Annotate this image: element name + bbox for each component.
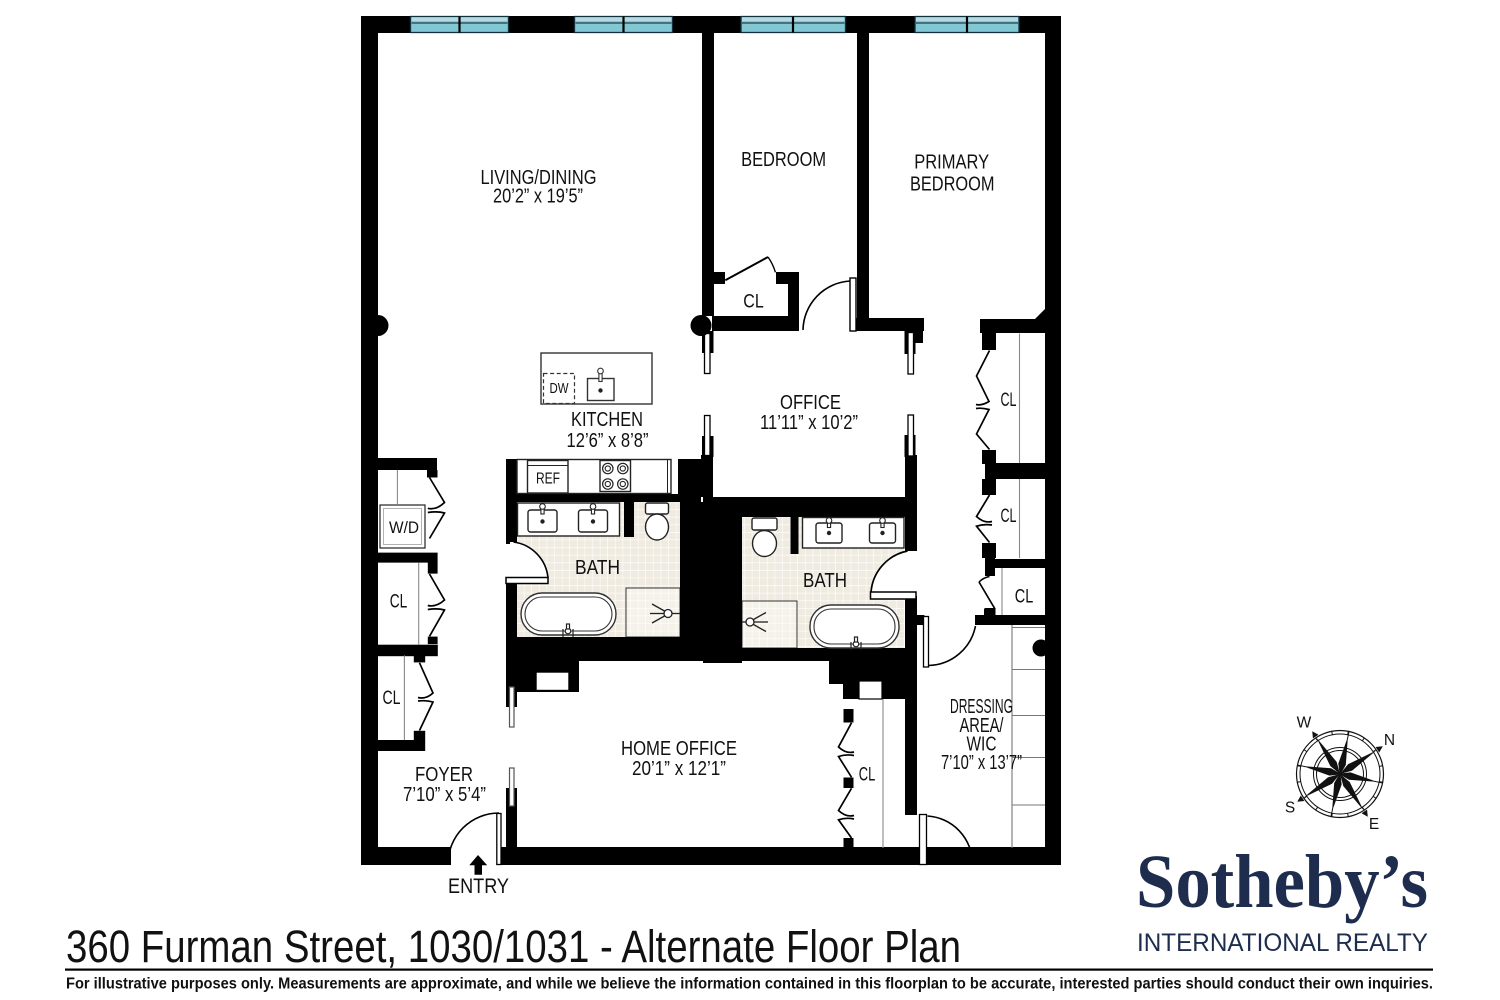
svg-text:N: N [1384, 732, 1395, 749]
svg-text:360 Furman Street, 1030/1031 -: 360 Furman Street, 1030/1031 - Alternate… [66, 921, 961, 972]
svg-text:BATH: BATH [803, 570, 847, 592]
svg-text:7’10” x 13’7”: 7’10” x 13’7” [941, 752, 1022, 774]
svg-text:FOYER: FOYER [415, 764, 473, 786]
svg-text:7’10” x 5’4”: 7’10” x 5’4” [403, 784, 486, 806]
svg-text:BATH: BATH [575, 557, 620, 579]
svg-text:20’1” x 12’1”: 20’1” x 12’1” [632, 758, 726, 780]
svg-text:INTERNATIONAL REALTY: INTERNATIONAL REALTY [1137, 929, 1428, 957]
svg-text:BEDROOM: BEDROOM [741, 149, 826, 171]
svg-text:HOME OFFICE: HOME OFFICE [621, 738, 737, 760]
svg-text:ENTRY: ENTRY [448, 875, 509, 898]
svg-text:OFFICE: OFFICE [780, 392, 841, 414]
svg-text:CL: CL [743, 292, 764, 313]
svg-text:CL: CL [390, 592, 408, 613]
svg-text:CL: CL [1001, 506, 1017, 527]
svg-text:S: S [1285, 800, 1295, 817]
svg-text:CL: CL [859, 765, 876, 786]
svg-text:CL: CL [1001, 390, 1017, 411]
svg-text:E: E [1369, 816, 1379, 833]
svg-text:BEDROOM: BEDROOM [910, 173, 995, 195]
svg-text:20’2” x 19’5”: 20’2” x 19’5” [493, 186, 583, 208]
svg-text:PRIMARY: PRIMARY [914, 151, 989, 173]
svg-text:REF: REF [536, 471, 560, 488]
svg-text:DW: DW [550, 381, 569, 397]
svg-text:CL: CL [1015, 587, 1034, 608]
svg-text:CL: CL [383, 688, 401, 709]
svg-text:For illustrative purposes only: For illustrative purposes only. Measurem… [66, 976, 1433, 993]
svg-text:11’11” x 10’2”: 11’11” x 10’2” [760, 412, 858, 434]
svg-text:W: W [1297, 715, 1312, 732]
svg-text:W/D: W/D [389, 518, 419, 537]
svg-text:KITCHEN: KITCHEN [571, 409, 643, 431]
svg-text:12’6” x 8’8”: 12’6” x 8’8” [567, 430, 649, 452]
svg-text:Sotheby’s: Sotheby’s [1136, 840, 1428, 924]
